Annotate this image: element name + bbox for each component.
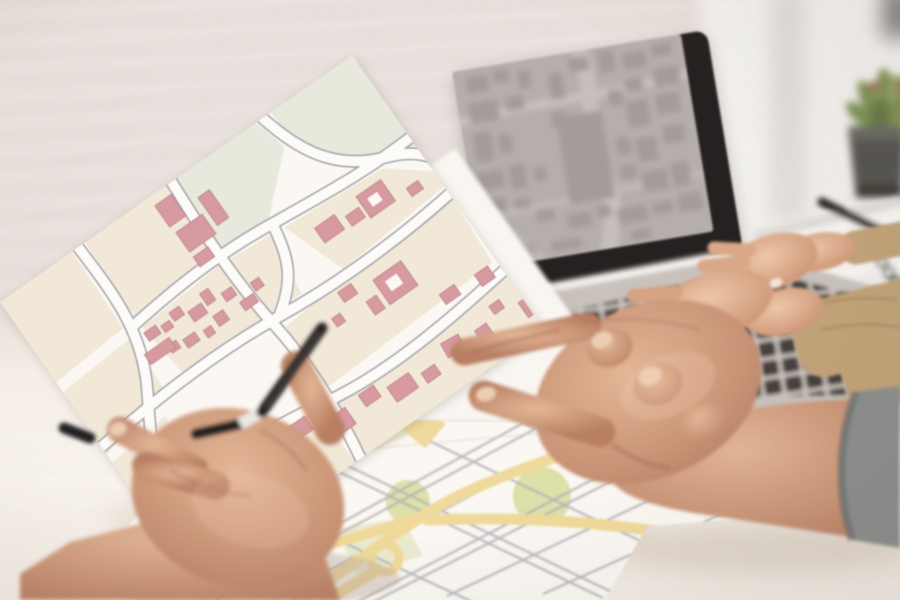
photo-scene <box>0 0 900 600</box>
man-left-hand <box>0 0 900 600</box>
pen-cap <box>64 428 90 438</box>
